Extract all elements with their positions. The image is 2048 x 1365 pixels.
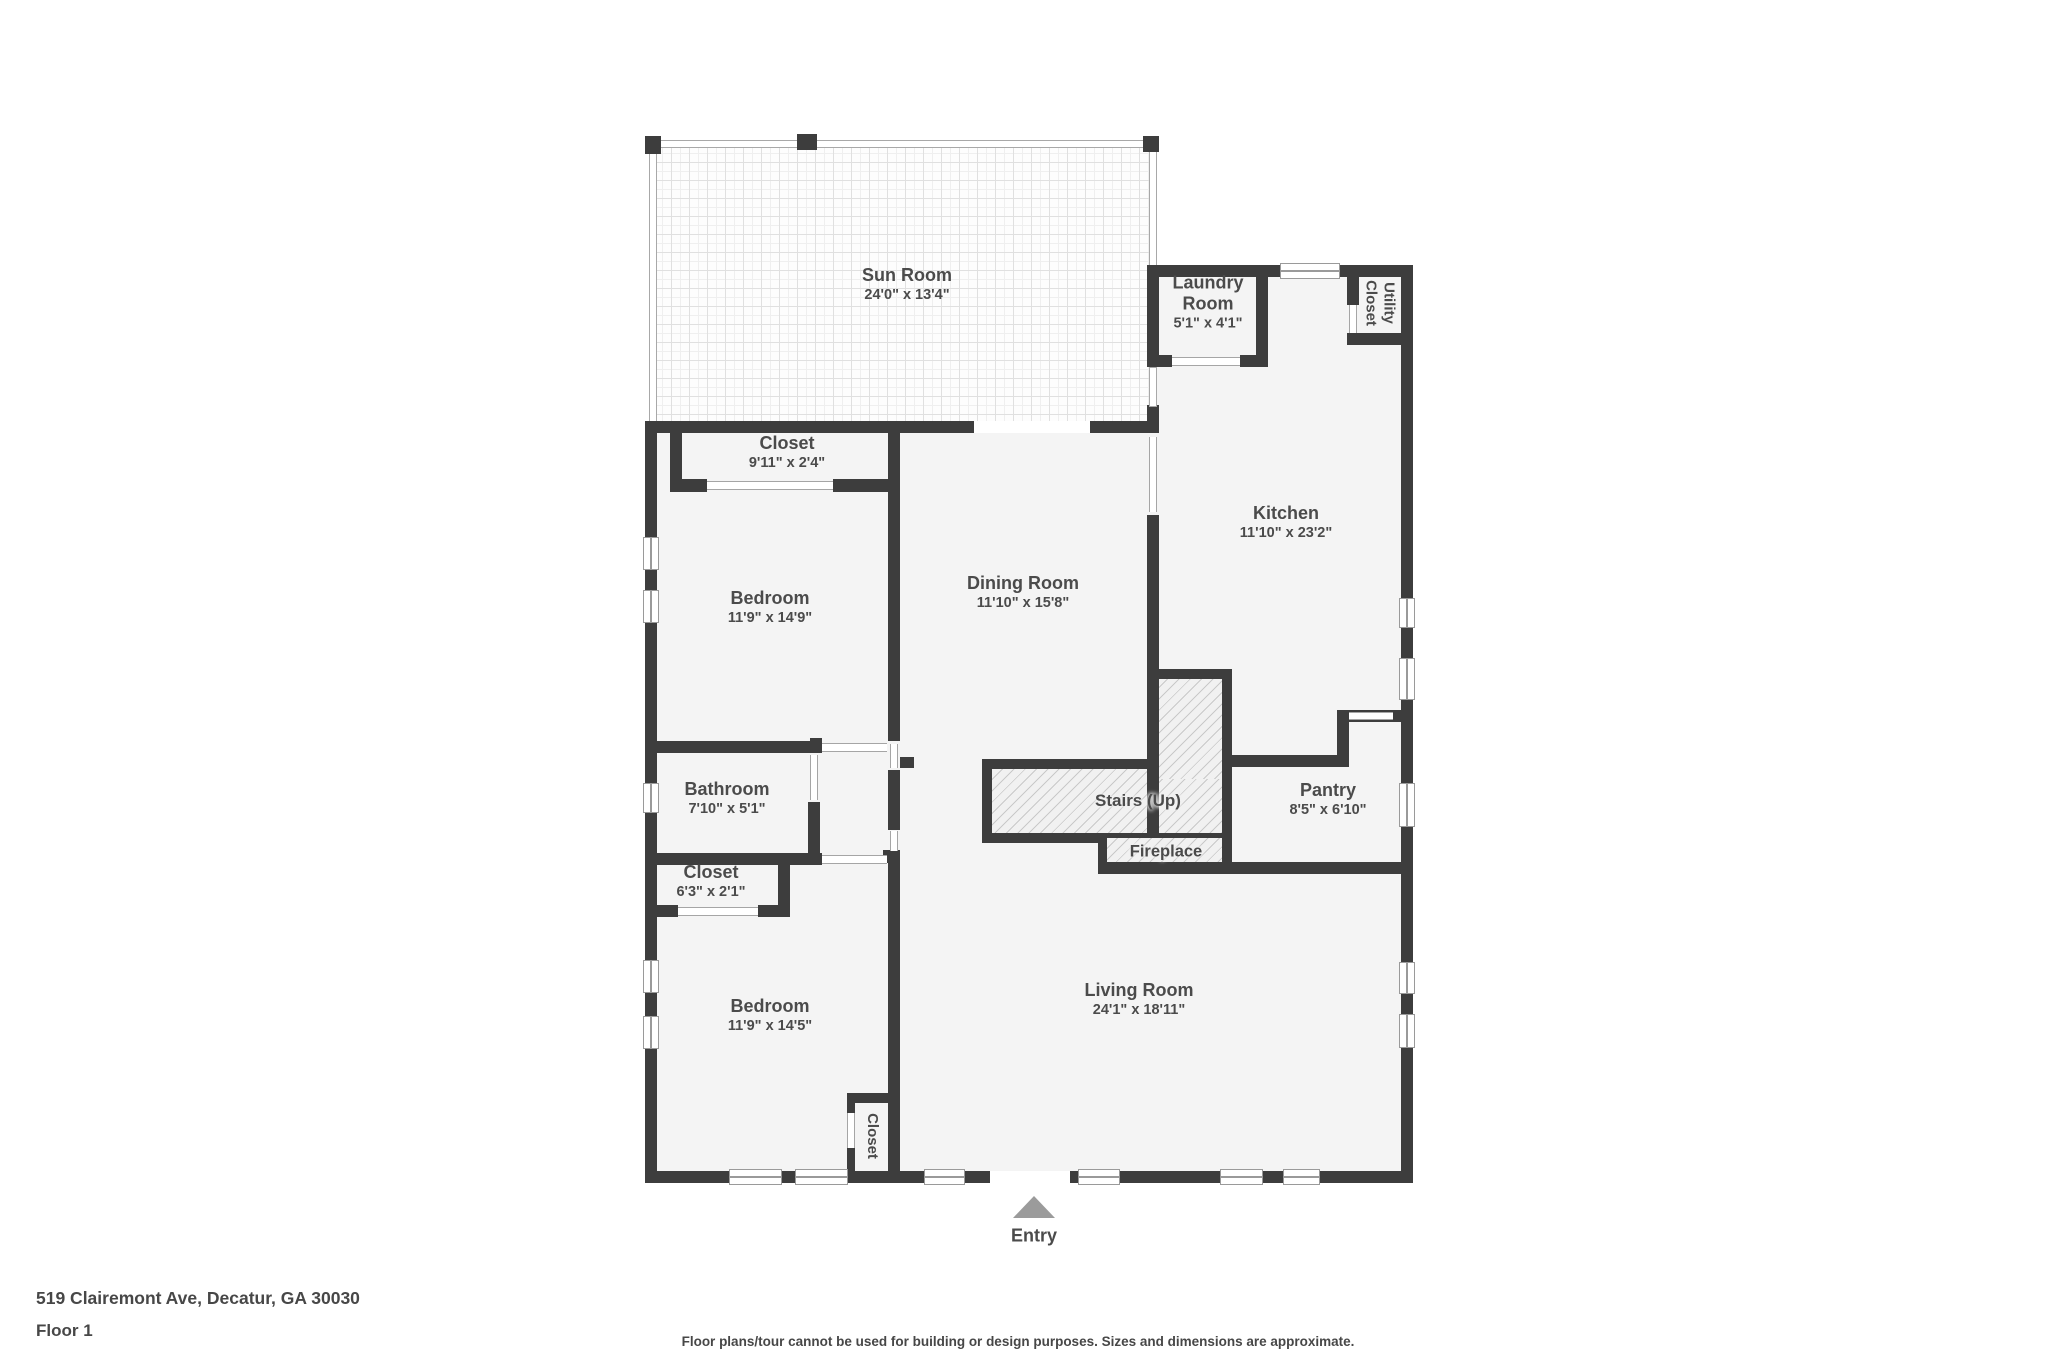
room-name: Kitchen [1240, 503, 1332, 524]
room-label-bedroom-bottom: Bedroom 11'9" x 14'5" [728, 996, 812, 1036]
window [1280, 263, 1340, 279]
room-label-living: Living Room 24'1" x 18'11" [1085, 980, 1194, 1020]
door-opening [890, 831, 898, 851]
room-name: Stairs (Up) [1095, 791, 1181, 811]
wall-post [797, 134, 817, 150]
sun-room-opening [974, 421, 1090, 433]
sun-room-glass-wall-top [649, 140, 1155, 148]
wall-living-top [1222, 862, 1413, 874]
room-dims: 11'9" x 14'5" [728, 1017, 812, 1036]
room-label-bedroom-top: Bedroom 11'9" x 14'9" [728, 588, 812, 628]
room-name: Bathroom [685, 779, 770, 800]
room-name: Closet [863, 1113, 881, 1159]
room-name: Closet [749, 433, 825, 454]
room-label-kitchen: Kitchen 11'10" x 23'2" [1240, 503, 1332, 543]
window [1283, 1169, 1320, 1185]
floor-label: Floor 1 [36, 1321, 93, 1341]
wall-pantry-top [1222, 755, 1347, 767]
room-label-closet-bottom: Closet [863, 1113, 881, 1159]
window [1399, 783, 1415, 827]
room-name: Laundry Room [1156, 272, 1260, 314]
room-name: Fireplace [1130, 842, 1202, 861]
entry-label: Entry [1011, 1225, 1057, 1246]
wall-post [847, 1148, 855, 1171]
door-opening [707, 481, 833, 490]
window [1399, 1014, 1415, 1048]
door-opening [810, 755, 818, 800]
wall-stub [900, 757, 914, 768]
sun-room-glass-wall-left [649, 140, 657, 423]
room-dims: 6'3" x 2'1" [676, 883, 745, 902]
door-opening [890, 744, 898, 768]
room-dims: 24'1" x 18'11" [1085, 1001, 1194, 1020]
wall-segment [1240, 355, 1268, 367]
wall-bathroom-right [808, 802, 820, 853]
window [1078, 1169, 1120, 1185]
window [1399, 658, 1415, 700]
window [795, 1169, 848, 1185]
room-label-bathroom: Bathroom 7'10" x 5'1" [685, 779, 770, 819]
room-name: Closet [676, 862, 745, 883]
room-label-laundry: Laundry Room 5'1" x 4'1" [1156, 272, 1260, 333]
wall-segment [790, 853, 822, 865]
room-name: Sun Room [862, 265, 952, 286]
window [1399, 962, 1415, 994]
room-label-pantry: Pantry 8'5" x 6'10" [1289, 780, 1366, 820]
wall-stairs-top [982, 759, 1147, 769]
window [643, 1016, 659, 1049]
address-text: 519 Clairemont Ave, Decatur, GA 30030 [36, 1288, 360, 1309]
wall-stairs-left [982, 759, 992, 843]
room-dims: 24'0" x 13'4" [862, 286, 952, 305]
disclaimer-text: Floor plans/tour cannot be used for buil… [682, 1334, 1355, 1349]
window [924, 1169, 965, 1185]
wall-segment [670, 479, 707, 492]
wall-segment [1147, 355, 1172, 367]
room-name: Living Room [1085, 980, 1194, 1001]
wall-dining-left [888, 421, 900, 741]
room-dims: 5'1" x 4'1" [1156, 315, 1260, 334]
room-name: Bedroom [728, 588, 812, 609]
room-label-fireplace: Fireplace [1130, 842, 1202, 861]
room-name: Dining Room [967, 573, 1079, 594]
door-opening [822, 743, 887, 752]
wall-segment [1090, 421, 1159, 433]
wall-segment [645, 421, 974, 433]
room-name: Pantry [1289, 780, 1366, 801]
room-dims: 7'10" x 5'1" [685, 800, 770, 819]
wall-dining-left [888, 770, 900, 830]
room-label-closet-top: Closet 9'11" x 2'4" [749, 433, 825, 473]
window [643, 960, 659, 993]
room-dims: 11'9" x 14'9" [728, 609, 812, 628]
room-label-closet-mid: Closet 6'3" x 2'1" [676, 862, 745, 902]
wall-segment [758, 905, 790, 917]
door-opening [1172, 357, 1240, 366]
wall-post [847, 1093, 855, 1113]
entry-door-opening [990, 1171, 1070, 1183]
room-dims: 8'5" x 6'10" [1289, 801, 1366, 820]
door-opening [1149, 437, 1157, 512]
door-opening [847, 1113, 855, 1148]
room-dims: 9'11" x 2'4" [749, 454, 825, 473]
window [643, 590, 659, 623]
wall-bedroom-bottom [645, 741, 822, 753]
room-label-stairs: Stairs (Up) [1095, 791, 1181, 811]
room-name: Utility Closet [1362, 271, 1397, 335]
wall-bedroom-living [888, 863, 900, 1171]
window [643, 537, 659, 570]
window [1399, 598, 1415, 628]
entry-text: Entry [1011, 1225, 1057, 1246]
door-opening [678, 907, 758, 916]
room-label-sun-room: Sun Room 24'0" x 13'4" [862, 265, 952, 305]
room-dims: 11'10" x 15'8" [967, 594, 1079, 613]
glass-panel [1149, 367, 1157, 407]
wall-post [645, 136, 661, 154]
wall-segment [645, 905, 678, 917]
door-opening [1349, 712, 1393, 720]
room-name: Bedroom [728, 996, 812, 1017]
window [643, 783, 659, 813]
door-opening [822, 855, 887, 864]
room-dims: 11'10" x 23'2" [1240, 524, 1332, 543]
wall-stairs-bottom [982, 833, 1098, 843]
entry-arrow-icon [1013, 1196, 1055, 1218]
window [729, 1169, 782, 1185]
floor-plan-page: Sun Room 24'0" x 13'4" Laundry Room 5'1"… [0, 0, 2048, 1365]
wall-post [1143, 136, 1159, 152]
room-label-utility-closet: Utility Closet [1362, 271, 1397, 335]
door-opening [1349, 305, 1357, 333]
room-label-dining: Dining Room 11'10" x 15'8" [967, 573, 1079, 613]
wall-segment [833, 479, 888, 492]
stairs-hatch-vertical [1157, 679, 1222, 779]
window [1220, 1169, 1263, 1185]
wall-utility-left [1347, 277, 1359, 305]
wall-post [810, 738, 822, 753]
